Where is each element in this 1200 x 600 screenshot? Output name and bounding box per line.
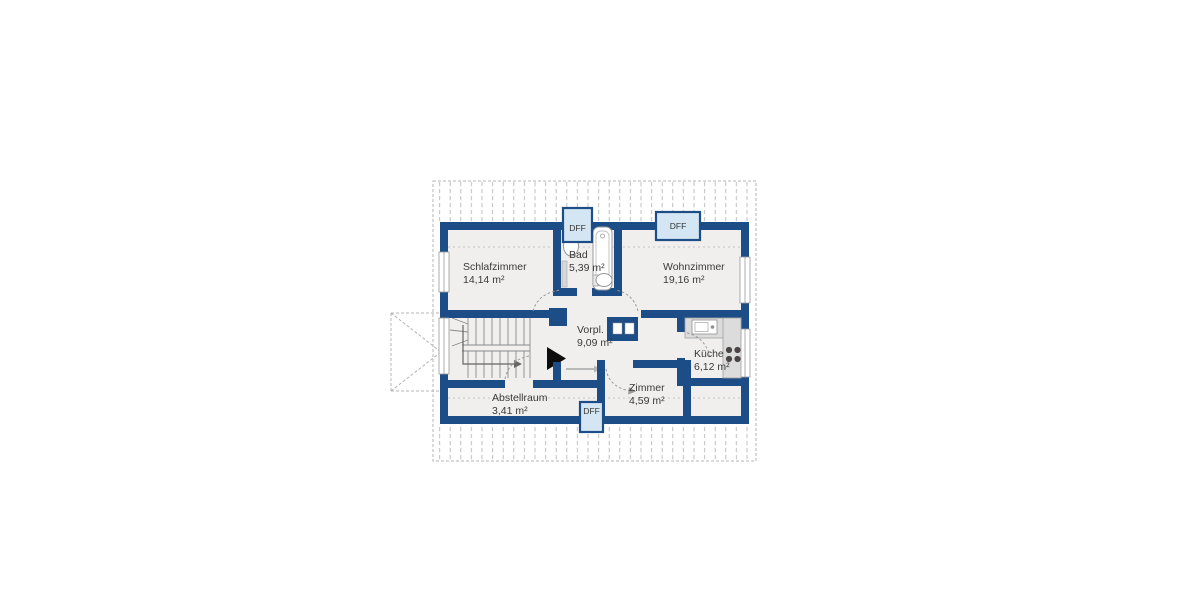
window-bedroom [439, 252, 449, 292]
wall-bedroom-post [549, 308, 567, 326]
roof-window-bath: DFF [563, 208, 592, 242]
room-name: Küche [694, 348, 724, 360]
wall-storage-top-left [440, 380, 505, 388]
wall-storage-top-right [533, 380, 597, 388]
roof-window-label: DFF [583, 406, 600, 416]
wall-hall-stub [553, 362, 561, 380]
wall-outer-right [741, 222, 749, 424]
wall-bath-right [614, 222, 622, 296]
room-name: Vorpl. [577, 324, 604, 336]
room-area: 4,59 m² [629, 395, 665, 407]
room-name: Abstellraum [492, 392, 548, 404]
toilet [593, 274, 612, 287]
room-label-zimmer: Zimmer 4,59 m² [629, 382, 665, 407]
room-area: 5,39 m² [569, 262, 605, 274]
wall-bath-bottom-left [561, 288, 577, 296]
room-name: Bad [569, 249, 588, 261]
window-gable [439, 318, 449, 374]
roof-hatch-top [433, 181, 756, 222]
wall-bedroom-bottom [440, 310, 552, 318]
roof-window-label: DFF [670, 221, 687, 231]
room-name: Zimmer [629, 382, 665, 394]
roof-window-label: DFF [569, 223, 586, 233]
room-area: 3,41 m² [492, 405, 528, 417]
window-kitchen [740, 329, 750, 377]
room-area: 19,16 m² [663, 274, 705, 286]
wall-kitchen-left-upper [677, 318, 685, 332]
roof-window-storage: DFF [580, 402, 603, 432]
kitchen-sink [692, 320, 717, 334]
radiator [562, 261, 567, 287]
wall-room-right [683, 360, 691, 424]
roof-window-livingroom: DFF [656, 212, 700, 240]
room-area: 9,09 m² [577, 337, 613, 349]
room-area: 6,12 m² [694, 361, 730, 373]
window-livingroom [740, 257, 750, 303]
wall-room-top [633, 360, 691, 368]
room-name: Wohnzimmer [663, 261, 725, 273]
room-area: 14,14 m² [463, 274, 505, 286]
floor-plan-canvas: DFF DFF DFF Schlafzimmer 14,14 m² Bad 5,… [0, 0, 1200, 600]
wall-bath-left [553, 222, 561, 296]
wall-livingroom-bottom [641, 310, 749, 318]
room-name: Schlafzimmer [463, 261, 527, 273]
